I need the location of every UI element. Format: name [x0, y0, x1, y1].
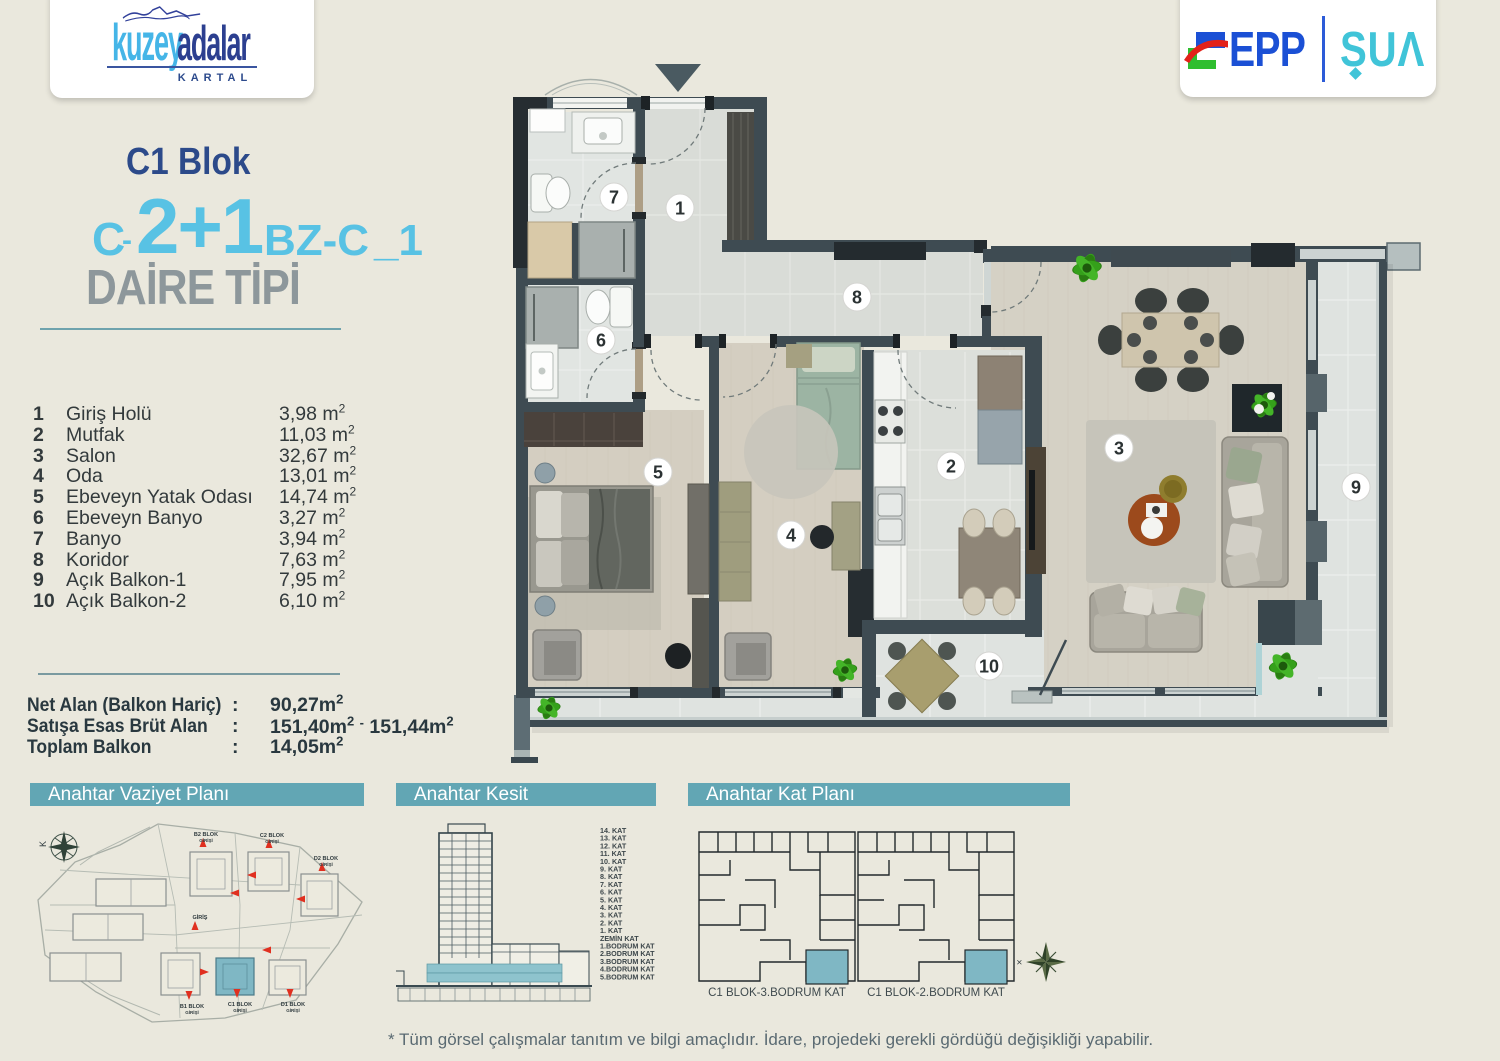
svg-text:C1 BLOK-2.BODRUM KAT: C1 BLOK-2.BODRUM KAT [867, 987, 1005, 999]
svg-text:GİRİŞİ: GİRİŞİ [319, 861, 333, 867]
svg-text:GİRİŞİ: GİRİŞİ [185, 1009, 199, 1015]
svg-text:GİRİŞİ: GİRİŞİ [265, 838, 279, 844]
svg-text:GİRİŞİ: GİRİŞİ [233, 1007, 247, 1013]
svg-text:K: K [38, 841, 48, 847]
svg-text:5.BODRUM KAT: 5.BODRUM KAT [600, 972, 655, 981]
svg-text:GİRİŞİ: GİRİŞİ [199, 837, 213, 843]
svg-text:GİRİŞ: GİRİŞ [193, 914, 208, 921]
svg-text:⨯: ⨯ [1016, 958, 1023, 967]
svg-text:GİRİŞİ: GİRİŞİ [286, 1007, 300, 1013]
svg-text:C1 BLOK-3.BODRUM KAT: C1 BLOK-3.BODRUM KAT [708, 987, 846, 999]
